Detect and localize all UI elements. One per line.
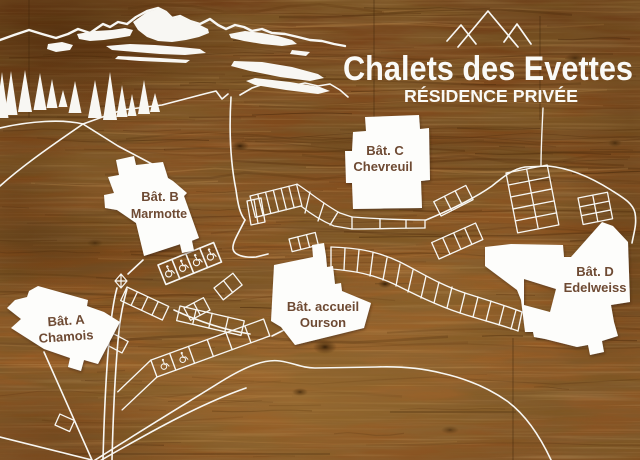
svg-text:Chalets des Evettes: Chalets des Evettes: [343, 50, 633, 88]
svg-text:Marmotte: Marmotte: [131, 207, 187, 221]
svg-text:Bât. D: Bât. D: [576, 264, 614, 279]
svg-text:RÉSIDENCE PRIVÉE: RÉSIDENCE PRIVÉE: [404, 85, 578, 106]
svg-text:Bât. accueil: Bât. accueil: [287, 299, 359, 314]
svg-text:Ourson: Ourson: [300, 315, 346, 330]
svg-text:Bât. B: Bât. B: [141, 189, 179, 204]
svg-text:Edelweiss: Edelweiss: [564, 280, 627, 295]
svg-text:Bât. C: Bât. C: [366, 143, 404, 158]
svg-text:Bât. A: Bât. A: [47, 312, 86, 330]
svg-text:Chevreuil: Chevreuil: [353, 159, 412, 174]
